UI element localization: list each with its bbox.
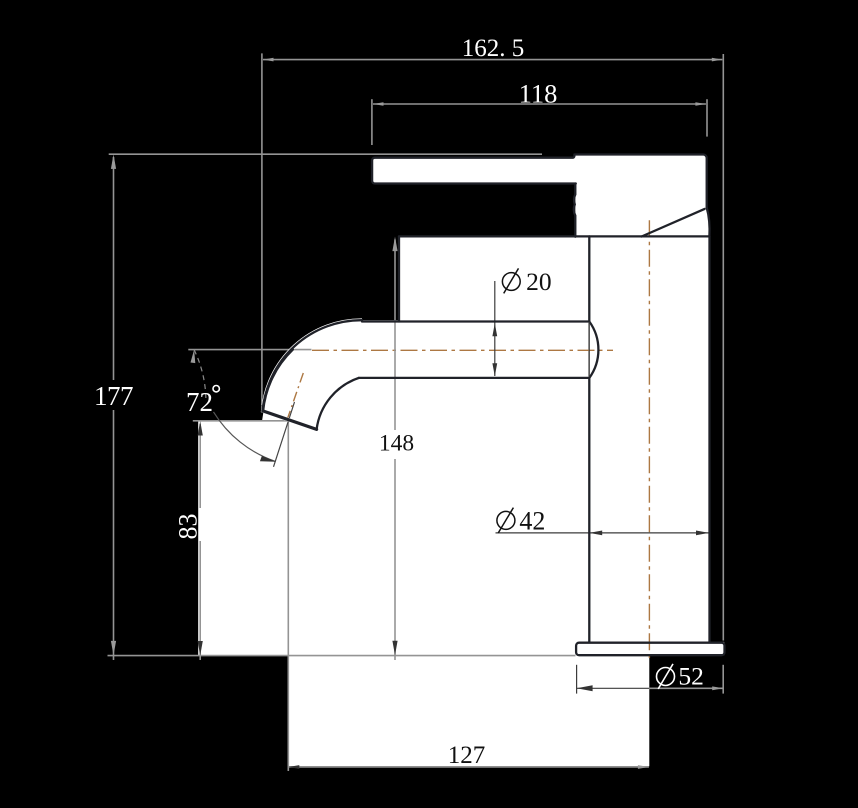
svg-text:72: 72 bbox=[186, 387, 213, 417]
svg-text:162. 5: 162. 5 bbox=[462, 35, 525, 62]
svg-text:148: 148 bbox=[379, 431, 414, 457]
svg-text:127: 127 bbox=[448, 742, 486, 769]
svg-text:52: 52 bbox=[678, 662, 704, 691]
svg-text:83: 83 bbox=[174, 514, 203, 540]
svg-text:42: 42 bbox=[519, 506, 545, 535]
svg-text:20: 20 bbox=[526, 267, 552, 296]
svg-text:177: 177 bbox=[94, 381, 133, 411]
svg-text:118: 118 bbox=[519, 79, 558, 109]
